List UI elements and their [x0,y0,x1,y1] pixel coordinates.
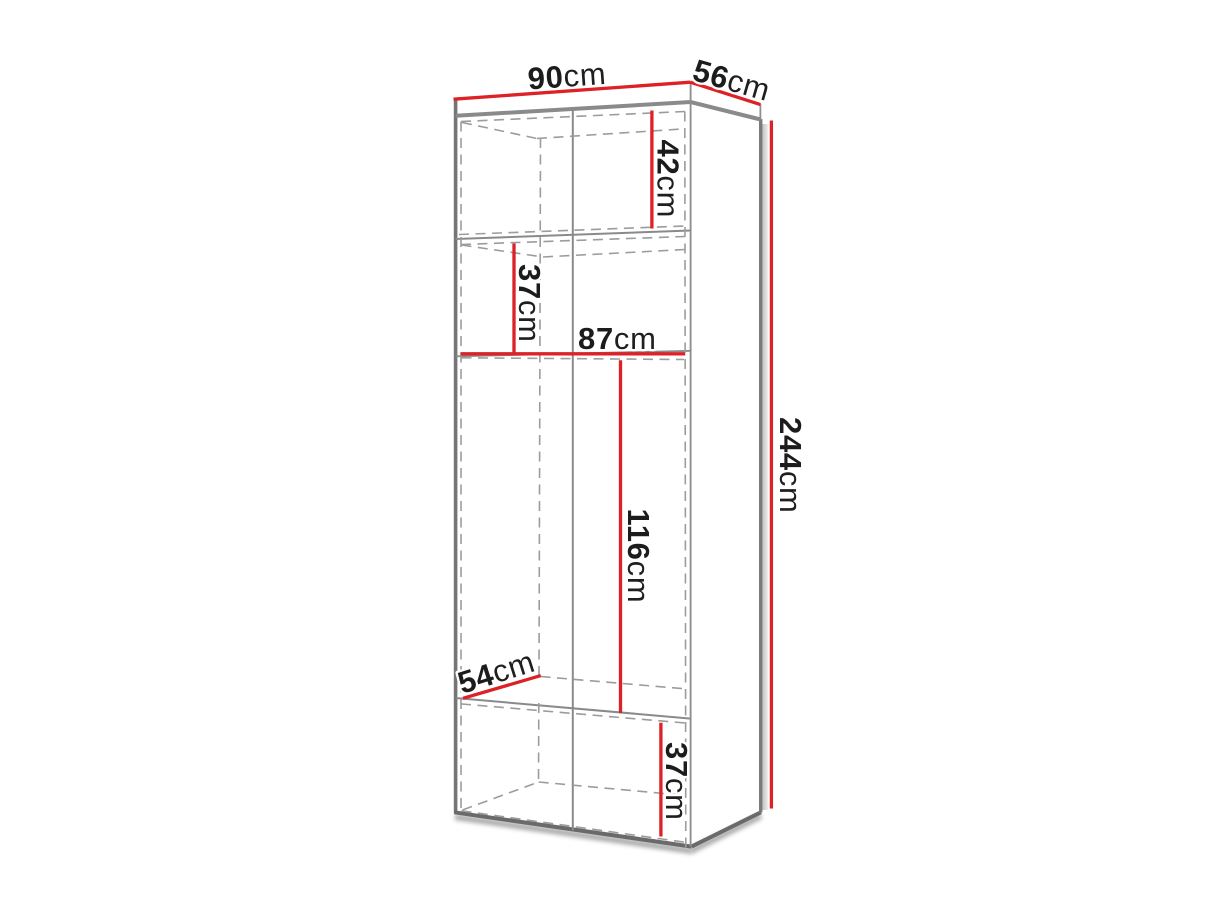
svg-text:116cm: 116cm [621,509,656,604]
svg-text:87cm: 87cm [578,321,657,356]
svg-text:37cm: 37cm [659,742,694,821]
svg-text:244cm: 244cm [773,417,808,514]
svg-text:42cm: 42cm [651,140,686,219]
svg-text:37cm: 37cm [512,264,547,343]
svg-text:90cm: 90cm [526,56,607,97]
